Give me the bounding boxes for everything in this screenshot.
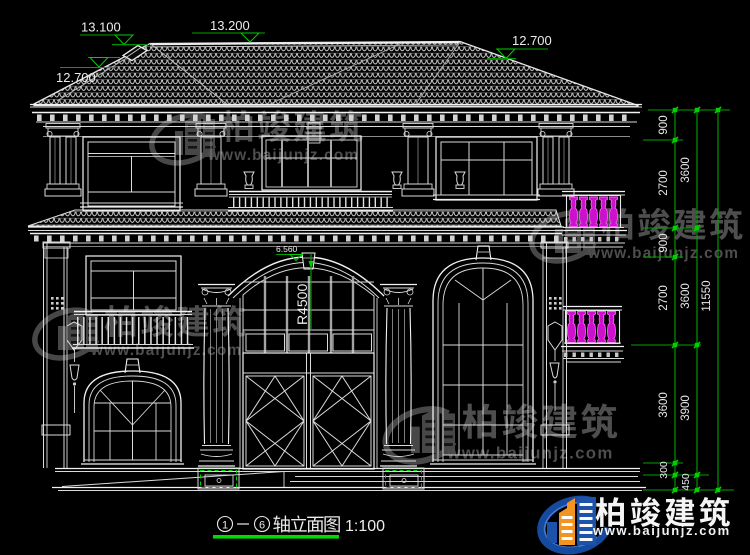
svg-text:2700: 2700 xyxy=(658,285,670,311)
svg-text:R4500: R4500 xyxy=(294,284,310,325)
svg-text:900: 900 xyxy=(658,233,670,252)
svg-text:12.700: 12.700 xyxy=(512,33,552,48)
svg-text:300: 300 xyxy=(658,461,670,479)
svg-text:6.560: 6.560 xyxy=(276,244,298,254)
svg-text:3900: 3900 xyxy=(680,395,692,421)
svg-text:12.700: 12.700 xyxy=(56,70,96,85)
svg-text:450: 450 xyxy=(680,473,692,491)
svg-text:900: 900 xyxy=(658,115,670,134)
svg-text:6: 6 xyxy=(259,520,265,532)
svg-text:3600: 3600 xyxy=(680,157,692,183)
svg-text:3600: 3600 xyxy=(680,283,692,309)
svg-text:13.200: 13.200 xyxy=(210,18,250,33)
svg-text:13.100: 13.100 xyxy=(81,20,121,35)
svg-text:3600: 3600 xyxy=(658,392,670,418)
svg-text:2700: 2700 xyxy=(658,170,670,196)
svg-text:www.baijunjz.com: www.baijunjz.com xyxy=(592,523,731,538)
svg-text:11550: 11550 xyxy=(701,280,713,311)
svg-text:1:100: 1:100 xyxy=(345,518,385,535)
svg-text:1: 1 xyxy=(222,520,228,532)
